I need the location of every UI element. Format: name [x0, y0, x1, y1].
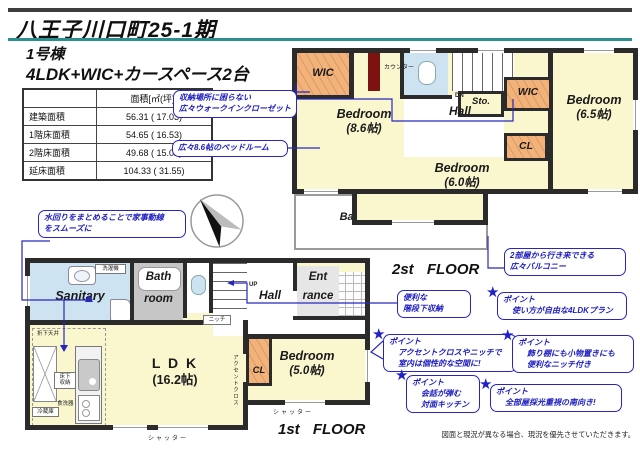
callout-line: ポイント	[412, 378, 474, 389]
callout-line: をスムーズに	[44, 224, 180, 235]
callout-water-area: 水回りをまとめることで家事動線 をスムーズに	[38, 210, 186, 238]
floor1-title: 1st FLOOR	[278, 421, 365, 438]
shutter-label-ldk: シャッター	[148, 433, 188, 442]
callout-balcony: 2部屋から行き来できる 広々バルコニー	[504, 248, 626, 276]
callout-wic: 収納場所に困らない 広々ウォークインクローゼット	[173, 90, 297, 118]
floor2-title: 2st FLOOR	[392, 261, 479, 278]
callout-line: 広々ウォークインクローゼット	[179, 104, 291, 115]
callout-line: ポイント	[389, 337, 511, 348]
area-row-label: 延床面積	[23, 162, 97, 181]
wall	[297, 95, 354, 99]
page: 八王子川口町25-1期 1号棟 4LDK+WIC+カースペース2台 面積[㎡(坪…	[0, 0, 640, 453]
bedroom-65-label: Bedroom (6.5帖)	[554, 92, 634, 123]
entrance-label: Ent rance	[297, 270, 339, 304]
toilet-icon	[191, 275, 206, 295]
ldk-label: L D K (16.2帖)	[130, 354, 220, 388]
callout-line: 便利な	[403, 293, 465, 304]
wall	[349, 53, 354, 95]
callout-stairs-storage: 便利な 階段下収納	[397, 290, 471, 318]
window	[304, 189, 338, 194]
floor2-plan: Balcony Sto. WIC CL	[292, 48, 638, 248]
callout-line: ポイント	[503, 295, 621, 306]
area-row-value: 104.33 ( 31.55)	[97, 162, 213, 181]
bedroom-65-size: (6.5帖)	[554, 108, 634, 123]
callout-line: 全部屋採光重視の南向き!	[496, 398, 616, 409]
bedroom-86-name: Bedroom	[314, 106, 414, 122]
stove-icon	[78, 395, 100, 421]
window	[25, 276, 30, 306]
wall	[293, 316, 370, 320]
niche-label: ニッチ	[203, 315, 231, 325]
callout-line: 会話が弾む	[412, 389, 474, 400]
area-row-label: 1階床面積	[23, 126, 97, 144]
closet-2f-label: CL	[507, 140, 545, 154]
area-row-label: 2階床面積	[23, 144, 97, 162]
north-arrow-icon	[188, 192, 246, 250]
top-bar	[8, 8, 632, 12]
point-star-icon: ★	[479, 375, 492, 395]
callout-line: 2部屋から行き来できる	[510, 251, 620, 262]
vanity-icon	[68, 266, 96, 285]
bedroom-60-label: Bedroom (6.0帖)	[387, 160, 537, 191]
wic-left-label: WIC	[297, 66, 349, 80]
accent-cloth-label: アクセントクロス	[231, 354, 239, 410]
callout-line: 便利なニッチ付き	[518, 360, 628, 371]
entrance-porch	[337, 272, 365, 316]
point-star-icon: ★	[395, 366, 408, 386]
burner-icon	[82, 409, 90, 417]
callout-plan: ★ ポイント 使い方が自由な4LDKプラン	[497, 292, 627, 320]
counter-label: カウンター	[384, 62, 414, 71]
window	[584, 48, 614, 53]
toilet-2f	[404, 53, 448, 95]
disclaimer: 図面と現況が異なる場合、現況を優先させていただきます。	[442, 430, 635, 440]
floor-storage-line2: 収納	[56, 380, 74, 386]
hall2-label: Hall	[420, 104, 500, 120]
callout-line: 対面キッチン	[412, 400, 474, 411]
callout-line: ポイント	[518, 338, 628, 349]
window	[365, 350, 370, 382]
bath-line1: Bath	[134, 270, 183, 285]
window	[392, 220, 434, 225]
bedroom-60-size: (6.0帖)	[387, 176, 537, 191]
callout-niche: ★ ポイント 飾り棚にも小物置きにも 便利なニッチ付き	[512, 335, 634, 373]
hall1-label: Hall	[235, 288, 305, 304]
fridge-label: 冷蔵庫	[32, 407, 59, 417]
spec-label: 4LDK+WIC+カースペース2台	[26, 60, 249, 85]
callout-kitchen: ★ ポイント 会話が弾む 対面キッチン	[406, 375, 480, 413]
wall	[400, 53, 404, 99]
bedroom-50-size: (5.0帖)	[257, 364, 357, 379]
window	[113, 425, 147, 430]
dropped-ceiling-label: 折下天井	[37, 329, 59, 337]
ldk-name: L D K	[130, 354, 220, 372]
ldk-size: (16.2帖)	[130, 372, 220, 388]
stairs-down-label: DN	[455, 93, 464, 99]
point-star-icon: ★	[486, 283, 499, 303]
burner-icon	[82, 400, 90, 408]
kitchen-counter	[75, 346, 102, 424]
wall	[30, 320, 212, 325]
wall	[400, 95, 452, 99]
room-wic-right: WIC	[504, 77, 552, 111]
bedroom-86-size: (8.6帖)	[314, 122, 414, 137]
bedroom-65-name: Bedroom	[554, 92, 634, 108]
basin-icon	[74, 270, 90, 282]
title-underline	[8, 38, 632, 41]
callout-line: 使い方が自由な4LDKプラン	[503, 306, 621, 317]
bedroom-86-label: Bedroom (8.6帖)	[314, 106, 414, 137]
window	[285, 400, 325, 405]
callout-line: 階段下収納	[403, 304, 465, 315]
area-row-total: 延床面積 104.33 ( 31.55)	[23, 162, 212, 181]
sink-drain-icon	[89, 378, 96, 385]
toilet-icon	[418, 61, 436, 85]
callout-line: 広々8.6帖のベッドルーム	[178, 143, 282, 154]
entrance-line2: rance	[297, 289, 339, 304]
callout-line: アクセントクロスやニッチで	[389, 348, 511, 359]
bath-label: Bath room	[134, 270, 183, 307]
wall	[548, 53, 553, 189]
callout-line: 収納場所に困らない	[179, 93, 291, 104]
bedroom-60-name: Bedroom	[387, 160, 537, 176]
outside-under-entrance	[297, 320, 370, 334]
counter-cabinet	[368, 53, 380, 91]
point-star-icon: ★	[501, 326, 514, 346]
floor-storage-label: 床下 収納	[54, 372, 76, 389]
shutter-label-bedroom: シャッター	[273, 407, 313, 416]
window	[158, 425, 208, 430]
callout-line: 飾り棚にも小物置きにも	[518, 349, 628, 360]
wic-right-label: WIC	[507, 86, 549, 100]
area-table-corner	[23, 89, 97, 108]
bath-line2: room	[134, 292, 183, 307]
sanitary-label: Sanitary	[33, 288, 127, 304]
window	[478, 48, 504, 53]
floor1-plan: CL Sanitary 洗濯機 Bath room UP Hall	[25, 258, 370, 430]
window	[588, 189, 622, 194]
bedroom-50-name: Bedroom	[257, 348, 357, 364]
room-toilet-1f	[187, 263, 209, 313]
window	[410, 48, 436, 53]
bedroom-50-label: Bedroom (5.0帖)	[257, 348, 357, 379]
sink-icon	[78, 359, 100, 391]
washer-label: 洗濯機	[95, 264, 126, 274]
wall	[209, 263, 213, 313]
callout-line: 水回りをまとめることで家事動線	[44, 213, 180, 224]
callout-line: 広々バルコニー	[510, 262, 620, 273]
callout-line: ポイント	[496, 387, 616, 398]
callout-south-facing: ★ ポイント 全部屋採光重視の南向き!	[490, 384, 622, 412]
area-row-label: 建築面積	[23, 108, 97, 126]
dishwasher-label: 食洗器	[57, 399, 74, 407]
room-closet-2f: CL	[504, 133, 548, 161]
wall	[25, 258, 370, 263]
point-star-icon: ★	[372, 325, 385, 345]
entrance-line1: Ent	[297, 270, 339, 285]
wall	[183, 263, 187, 318]
callout-bedroom86: 広々8.6帖のベッドルーム	[172, 140, 288, 157]
